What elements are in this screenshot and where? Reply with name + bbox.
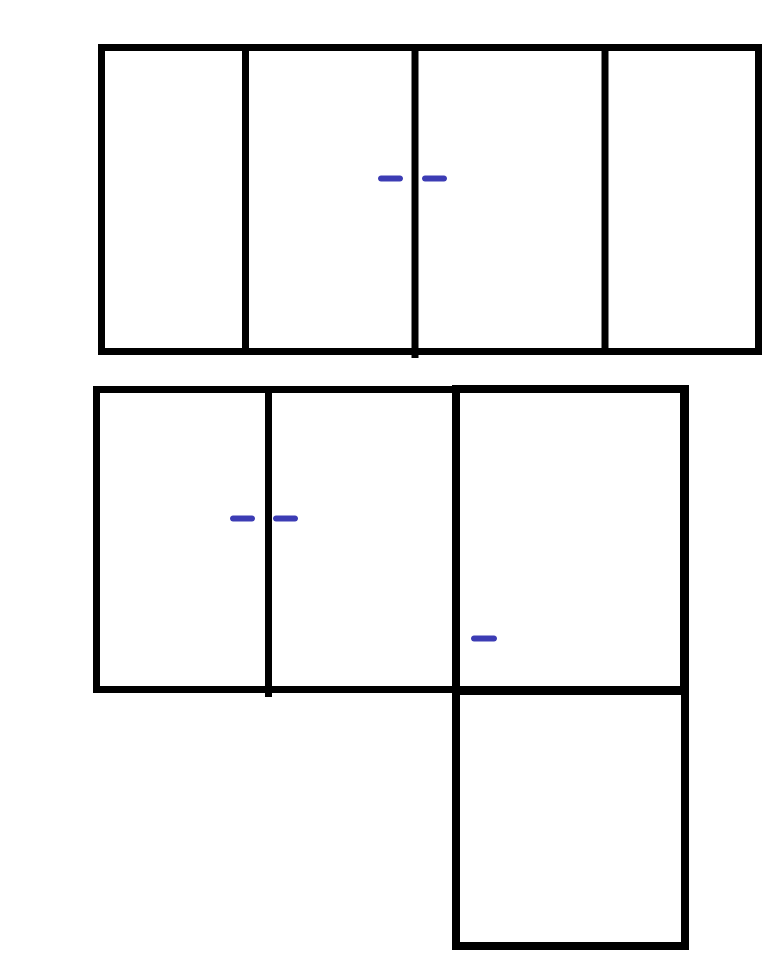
middle-cabinet-outline	[97, 390, 684, 690]
right-column-outline	[456, 389, 685, 946]
top-cabinet-outline	[102, 48, 759, 352]
diagram-canvas	[0, 0, 768, 978]
diagram-page	[0, 0, 768, 978]
